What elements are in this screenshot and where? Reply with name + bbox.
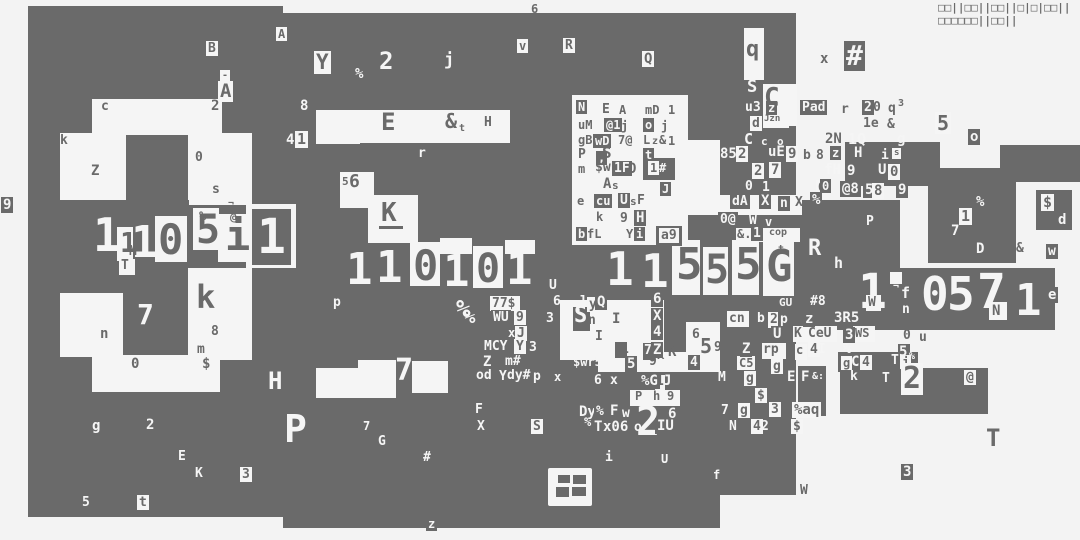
art-glyph: I (595, 330, 603, 343)
art-glyph: s (612, 180, 619, 191)
art-glyph: b (803, 149, 811, 162)
art-glyph: 4 (688, 355, 700, 370)
art-glyph: 1 (443, 250, 470, 294)
art-glyph: $ (1041, 194, 1054, 211)
art-glyph: o (634, 421, 642, 434)
art-glyph: t (643, 148, 654, 162)
art-glyph: z (766, 101, 777, 115)
art-glyph: 0 (921, 271, 949, 317)
art-glyph: 2 (770, 313, 778, 326)
window-pane (556, 487, 569, 497)
art-glyph: 0 (158, 219, 183, 261)
art-glyph: WS (855, 327, 869, 339)
art-glyph: j (444, 52, 454, 69)
art-glyph: h (834, 256, 843, 271)
art-glyph: & (1016, 242, 1024, 255)
art-glyph: G (378, 435, 386, 448)
art-glyph: Q (595, 294, 607, 310)
art-glyph: $ (791, 419, 803, 434)
art-glyph: cop (769, 228, 787, 238)
art-glyph: 5 (899, 345, 907, 359)
window-panes-icon (548, 468, 592, 506)
window-pane (572, 487, 586, 496)
art-glyph: H (854, 146, 862, 160)
art-glyph: 0 (873, 101, 881, 114)
art-glyph: 1 (506, 248, 533, 292)
art-glyph: gB (578, 134, 592, 146)
art-glyph: 1 (668, 135, 675, 147)
art-glyph: % (584, 416, 591, 428)
art-glyph: Q (642, 51, 654, 67)
art-glyph: od (476, 369, 492, 382)
art-glyph: Z (483, 355, 491, 369)
art-glyph: K (381, 200, 397, 226)
art-glyph: j (621, 120, 628, 132)
art-glyph: k (596, 211, 603, 223)
art-glyph: 7 (137, 301, 154, 329)
art-glyph: 7 (363, 420, 370, 432)
art-glyph: % (594, 404, 606, 419)
art-glyph: % (810, 192, 822, 208)
art-glyph: % (355, 67, 363, 81)
art-glyph: 4 (860, 355, 872, 370)
art-glyph: C5 (737, 356, 755, 370)
art-glyph: fH (824, 163, 841, 177)
art-glyph: 6 (553, 295, 561, 308)
art-glyph: H (634, 210, 646, 226)
art-glyph: 2 (211, 99, 219, 113)
art-glyph: 3 (901, 464, 913, 480)
art-glyph: # (844, 41, 865, 71)
art-glyph: 0 (476, 249, 500, 289)
art-glyph: s (892, 148, 901, 159)
art-glyph: d (750, 116, 762, 131)
art-glyph: t (778, 245, 784, 255)
art-glyph: 3 (546, 312, 554, 325)
art-glyph: 8 (300, 99, 308, 113)
art-glyph: 1 (959, 208, 972, 225)
art-glyph: 1 (1015, 279, 1042, 323)
art-glyph: ¬ (893, 282, 899, 292)
art-glyph: B (206, 41, 218, 56)
art-glyph: Jzn (764, 115, 780, 124)
art-glyph: 1 (93, 212, 121, 258)
art-glyph: CeU (808, 327, 831, 340)
art-glyph: 1 (668, 104, 675, 116)
art-glyph: Pad (800, 100, 827, 115)
art-glyph: o (968, 129, 980, 145)
art-glyph: O (628, 162, 636, 176)
art-glyph: rp (763, 343, 779, 356)
art-glyph: 6 (594, 374, 602, 387)
art-glyph: T (986, 426, 1000, 450)
art-glyph: i (881, 149, 889, 162)
art-glyph: F (637, 194, 645, 207)
art-glyph: v (517, 39, 528, 53)
art-glyph: A (619, 104, 626, 116)
art-glyph: x (554, 371, 561, 383)
art-glyph: A (276, 27, 287, 41)
art-glyph: z (426, 517, 437, 531)
art-glyph: n (100, 327, 108, 341)
art-glyph: f (713, 469, 720, 481)
art-glyph: & (445, 111, 457, 131)
art-glyph: H (268, 369, 282, 393)
art-patch (678, 140, 720, 215)
art-glyph: P (284, 410, 307, 448)
art-glyph: 1 (295, 131, 308, 148)
art-glyph: 2 (736, 146, 748, 162)
art-glyph: 7 (951, 224, 959, 238)
art-glyph: Y (314, 51, 331, 74)
art-glyph: K (668, 345, 676, 359)
art-glyph: % (843, 342, 851, 356)
art-glyph: M (718, 371, 726, 384)
art-glyph: i (225, 215, 250, 257)
art-glyph: i (603, 450, 615, 465)
art-glyph: P (578, 148, 586, 161)
art-glyph: 0 (745, 180, 753, 193)
art-glyph: #8 (810, 295, 826, 308)
art-patch (60, 293, 123, 357)
art-glyph: w (1046, 244, 1058, 259)
art-glyph: 1 (346, 248, 373, 292)
art-glyph: s (212, 183, 220, 196)
window-pane (558, 475, 570, 483)
art-glyph: X (795, 196, 803, 209)
art-glyph: U (618, 193, 630, 208)
art-glyph: f (901, 286, 910, 301)
art-glyph: W (868, 296, 876, 309)
art-glyph: %aq (792, 402, 821, 418)
art-glyph: m# (505, 355, 521, 368)
art-glyph: g (92, 419, 100, 433)
art-glyph: 4 (286, 133, 294, 147)
art-glyph: g (744, 371, 756, 386)
art-glyph: k (60, 134, 68, 147)
art-glyph: F (475, 403, 483, 416)
art-glyph: 0 (820, 179, 831, 193)
art-glyph: Y (514, 339, 526, 354)
art-glyph: n (588, 314, 596, 327)
art-glyph: 9 (514, 310, 526, 325)
art-glyph: &: (812, 372, 824, 382)
art-glyph: F (610, 404, 618, 418)
art-glyph: J (663, 374, 671, 388)
art-glyph: $wr5 (573, 356, 602, 368)
art-glyph: $ (202, 357, 210, 371)
art-glyph: 9 (714, 341, 722, 354)
art-glyph: 0 (903, 329, 911, 342)
art-glyph: R (563, 38, 575, 53)
art-glyph: 0 (195, 151, 203, 164)
art-glyph: MCY (482, 339, 509, 354)
art-patch (189, 180, 252, 205)
art-glyph: dA (730, 194, 750, 209)
art-glyph: 2 (901, 363, 923, 395)
art-glyph: t (137, 495, 149, 510)
art-glyph: 9^ (649, 355, 665, 368)
art-glyph: N (729, 420, 737, 433)
art-glyph: 0 (413, 245, 438, 287)
art-glyph: x (820, 52, 828, 66)
art-glyph: 3 (529, 341, 537, 354)
art-glyph: 1e (863, 117, 879, 130)
art-glyph: % (976, 195, 984, 209)
art-glyph: E (381, 110, 395, 134)
art-glyph: 5 (342, 176, 349, 187)
art-glyph: 9 (1, 197, 13, 213)
art-glyph: IU (655, 418, 676, 434)
art-glyph: T (121, 259, 129, 272)
art-glyph: 2 (761, 420, 769, 433)
art-glyph: 1 (376, 246, 403, 290)
art-glyph: g (897, 132, 905, 146)
art-glyph: 9 (667, 390, 674, 402)
art-glyph: j (661, 120, 668, 132)
art-glyph: K (195, 467, 203, 480)
art-glyph: & (659, 134, 666, 146)
art-glyph: 85 (720, 147, 737, 161)
art-patch (92, 355, 220, 392)
art-glyph: z (803, 311, 815, 327)
art-glyph: WU (491, 310, 511, 325)
art-glyph: N (576, 100, 587, 114)
art-glyph: r (841, 103, 849, 116)
art-glyph: E (178, 450, 186, 463)
art-glyph: 5 (947, 271, 975, 317)
art-glyph: fL (587, 228, 601, 240)
art-glyph: C (744, 132, 753, 147)
art-glyph: I (818, 343, 826, 356)
art-glyph: U (549, 279, 557, 292)
art-glyph: $ (755, 388, 767, 403)
art-glyph: 7 (721, 404, 729, 417)
art-glyph: S (531, 419, 543, 434)
art-glyph: N (992, 304, 1000, 318)
art-glyph: 5 (705, 250, 729, 290)
art-glyph: p (778, 312, 790, 327)
art-glyph: A (218, 81, 233, 102)
art-glyph: k (196, 281, 215, 313)
art-glyph: # (659, 162, 666, 174)
art-glyph: S (574, 305, 587, 327)
art-patch (316, 368, 360, 398)
art-glyph: 3 (769, 402, 781, 417)
art-glyph: uE (768, 145, 785, 159)
art-glyph: k (850, 370, 858, 383)
art-glyph: q (888, 102, 896, 115)
art-glyph: X (475, 419, 487, 434)
art-glyph: 3R5 (834, 311, 859, 325)
art-glyph: 6 (692, 328, 700, 341)
art-glyph: E (787, 370, 795, 384)
art-glyph: 8 (816, 149, 824, 162)
art-glyph: r (418, 147, 426, 160)
window-pane (573, 475, 586, 484)
art-glyph: Z (740, 341, 752, 357)
art-glyph: mD (645, 104, 659, 116)
art-glyph: @1 (604, 118, 622, 132)
art-glyph: Z (91, 164, 99, 178)
art-glyph: 7 (395, 356, 413, 386)
art-glyph: 8 (872, 183, 884, 199)
art-glyph: n (778, 196, 790, 211)
art-patch (412, 361, 448, 393)
art-glyph: m (578, 163, 585, 175)
art-glyph: % (464, 308, 475, 327)
art-glyph: U (878, 163, 886, 177)
art-glyph: 2N (825, 132, 842, 146)
art-glyph: d (1056, 212, 1068, 228)
art-glyph: 9 (896, 182, 908, 198)
art-glyph: S (747, 79, 757, 96)
art-glyph: q (746, 39, 759, 61)
art-glyph: 5 (935, 112, 951, 134)
art-glyph: b (755, 311, 767, 326)
art-glyph: & (887, 118, 895, 131)
art-glyph: 5 (676, 243, 703, 287)
art-glyph: 0 (131, 357, 139, 371)
art-glyph: c (796, 344, 803, 356)
art-glyph: 5 (625, 356, 637, 372)
art-glyph: 3 (898, 99, 904, 109)
art-glyph: uM (578, 119, 592, 131)
art-glyph: g (738, 403, 750, 418)
barcode-strip: □□||□□||□□||□|□|□□||□□□□□□||□□|| (938, 1, 1080, 27)
art-glyph: x06 (603, 420, 628, 434)
art-glyph: dy# (507, 369, 530, 382)
art-glyph: W (800, 484, 808, 497)
art-glyph: 1 (641, 248, 669, 294)
art-glyph: 5 (82, 496, 90, 509)
art-patch (358, 360, 396, 398)
art-glyph: 0 (888, 164, 900, 180)
art-glyph: 3 (240, 467, 252, 482)
art-glyph: c (761, 136, 768, 147)
art-glyph: 7 (769, 162, 781, 178)
art-glyph: 1 (648, 161, 659, 175)
art-glyph: 0@ (718, 212, 738, 227)
art-glyph: R (808, 238, 821, 260)
art-glyph: s (630, 196, 637, 207)
art-glyph: D (976, 242, 984, 256)
art-glyph: u (919, 331, 927, 344)
art-glyph: X (759, 193, 771, 209)
art-glyph: 5 (735, 243, 762, 287)
art-glyph: n (902, 303, 910, 316)
art-glyph: p (333, 296, 341, 309)
art-glyph: i (634, 227, 645, 241)
art-glyph: @ (230, 212, 237, 223)
art-glyph: K (794, 327, 802, 340)
art-glyph: 2 (752, 163, 764, 179)
art-glyph: I (612, 312, 620, 326)
art-glyph: L (643, 134, 650, 146)
art-glyph: t (459, 124, 465, 134)
art-glyph: F (801, 370, 809, 384)
art-glyph: 4 (651, 324, 663, 340)
art-glyph: J (660, 182, 671, 196)
art-glyph: u3 (745, 101, 761, 114)
art-glyph: b (576, 227, 587, 241)
art-glyph: H (484, 116, 492, 129)
art-glyph: 9 (620, 212, 628, 225)
art-glyph: 6 (531, 3, 538, 15)
art-glyph: z (652, 137, 658, 147)
art-glyph: @8 (840, 181, 861, 197)
art-glyph: M (129, 245, 137, 258)
art-glyph: 2 (146, 418, 154, 432)
art-glyph: e (577, 195, 584, 207)
art-glyph: 77$ (492, 297, 515, 310)
glitch-art-canvas: BAY-Ac28k410Zs¬5696vR2jQ%E&tHrNEAmD1uM@1… (0, 0, 1080, 540)
art-glyph: A (603, 177, 611, 191)
art-glyph: U (771, 326, 783, 342)
art-glyph: m (197, 343, 205, 356)
art-glyph: 6 (349, 173, 360, 191)
art-glyph: Y (626, 228, 633, 240)
art-glyph: cn (729, 312, 745, 325)
art-glyph: GU (779, 297, 792, 308)
art-glyph: 1 (257, 213, 286, 261)
art-glyph: p (531, 369, 543, 384)
art-glyph: T (891, 354, 899, 367)
art-glyph: x (608, 373, 620, 388)
art-glyph: 6 (651, 291, 663, 307)
art-glyph: S (602, 145, 612, 161)
art-glyph: 9 (847, 164, 855, 178)
art-glyph: # (421, 450, 433, 465)
art-glyph: @ (964, 370, 976, 385)
art-glyph: 2 (379, 49, 393, 73)
art-patch (92, 99, 222, 135)
art-glyph: w (629, 299, 635, 309)
art-glyph: U (661, 453, 668, 465)
art-glyph: cu (594, 194, 612, 208)
art-glyph: % (199, 210, 206, 222)
art-patch (316, 110, 360, 144)
art-glyph: 5 (700, 336, 712, 356)
art-patch (1000, 145, 1080, 182)
art-glyph: g (771, 359, 783, 374)
art-glyph: X (651, 308, 663, 324)
art-glyph: e (1046, 287, 1058, 303)
art-glyph: P (866, 215, 874, 228)
art-glyph: o (643, 118, 654, 132)
art-glyph: 7@ (618, 134, 632, 146)
art-glyph: 8 (211, 325, 219, 338)
art-glyph: E (602, 103, 610, 116)
art-glyph: C (851, 355, 859, 369)
art-glyph: T (882, 372, 890, 385)
art-glyph: ¬ (228, 199, 234, 209)
art-glyph: c (101, 100, 109, 113)
art-glyph: $w (595, 161, 611, 174)
art-glyph: z (830, 146, 841, 160)
art-glyph: 1 (606, 246, 634, 292)
art-glyph: 1 (621, 343, 629, 356)
art-glyph: 9 (786, 146, 798, 162)
